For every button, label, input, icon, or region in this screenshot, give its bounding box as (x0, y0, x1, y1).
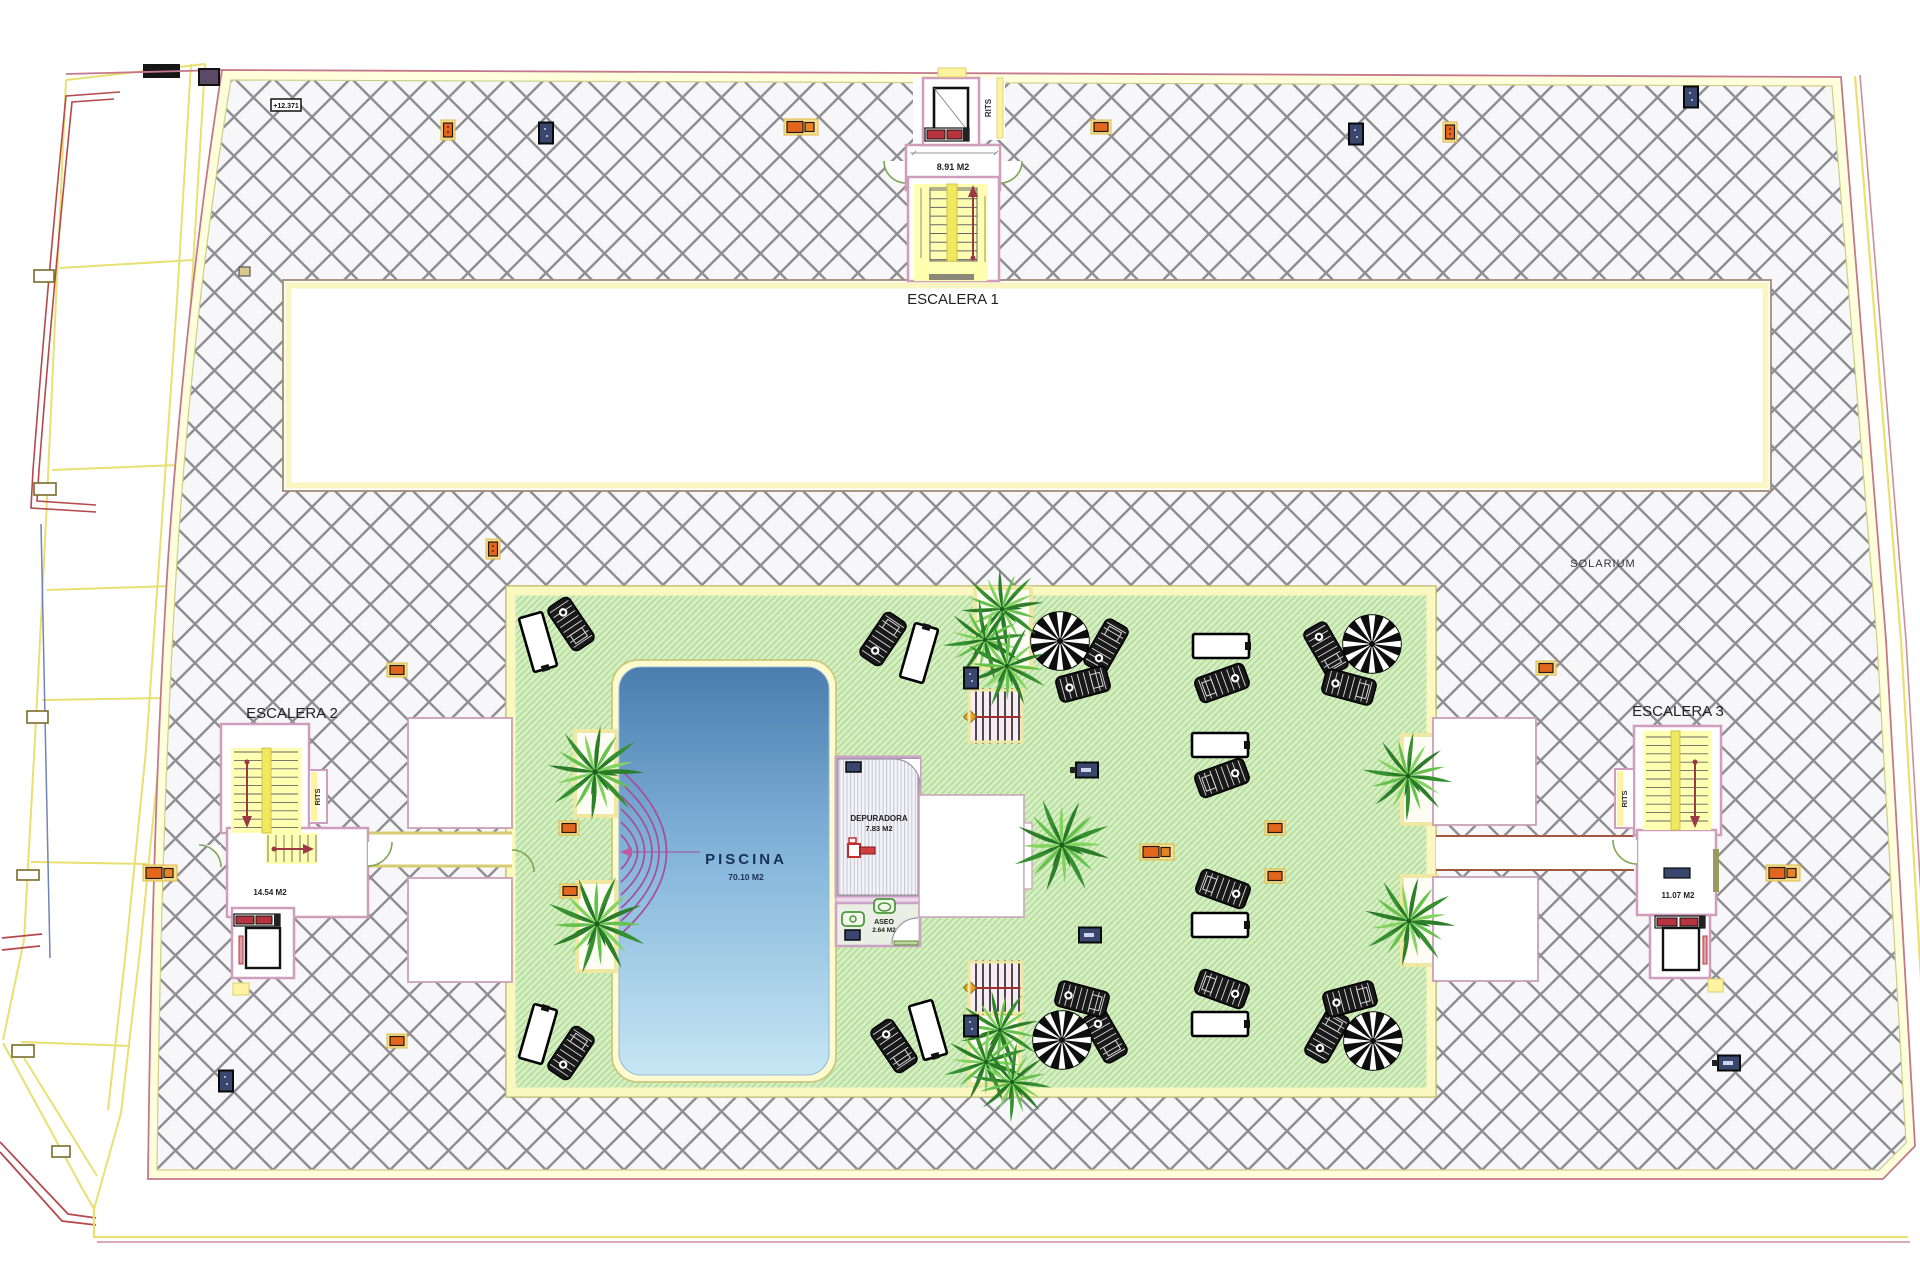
svg-text:RITS: RITS (1620, 790, 1629, 807)
svg-text:ESCALERA 1: ESCALERA 1 (907, 291, 999, 308)
svg-text:14.54 M2: 14.54 M2 (253, 888, 287, 897)
svg-text:DEPURADORA: DEPURADORA (850, 814, 908, 823)
svg-text:RITS: RITS (313, 788, 322, 805)
svg-text:8.91 M2: 8.91 M2 (937, 162, 970, 172)
svg-text:ASEO: ASEO (874, 919, 894, 926)
svg-text:RITS: RITS (984, 98, 993, 117)
svg-text:+12.371: +12.371 (273, 103, 299, 110)
svg-text:11.07 M2: 11.07 M2 (1662, 891, 1695, 900)
svg-text:7.83 M2: 7.83 M2 (865, 824, 892, 833)
svg-text:ESCALERA 3: ESCALERA 3 (1632, 703, 1724, 720)
svg-text:PISCINA: PISCINA (705, 851, 787, 868)
svg-text:ESCALERA 2: ESCALERA 2 (246, 705, 338, 722)
svg-text:70.10 M2: 70.10 M2 (728, 872, 764, 882)
svg-text:SOLARIUM: SOLARIUM (1570, 558, 1635, 570)
svg-text:2.64 M2: 2.64 M2 (872, 927, 896, 934)
